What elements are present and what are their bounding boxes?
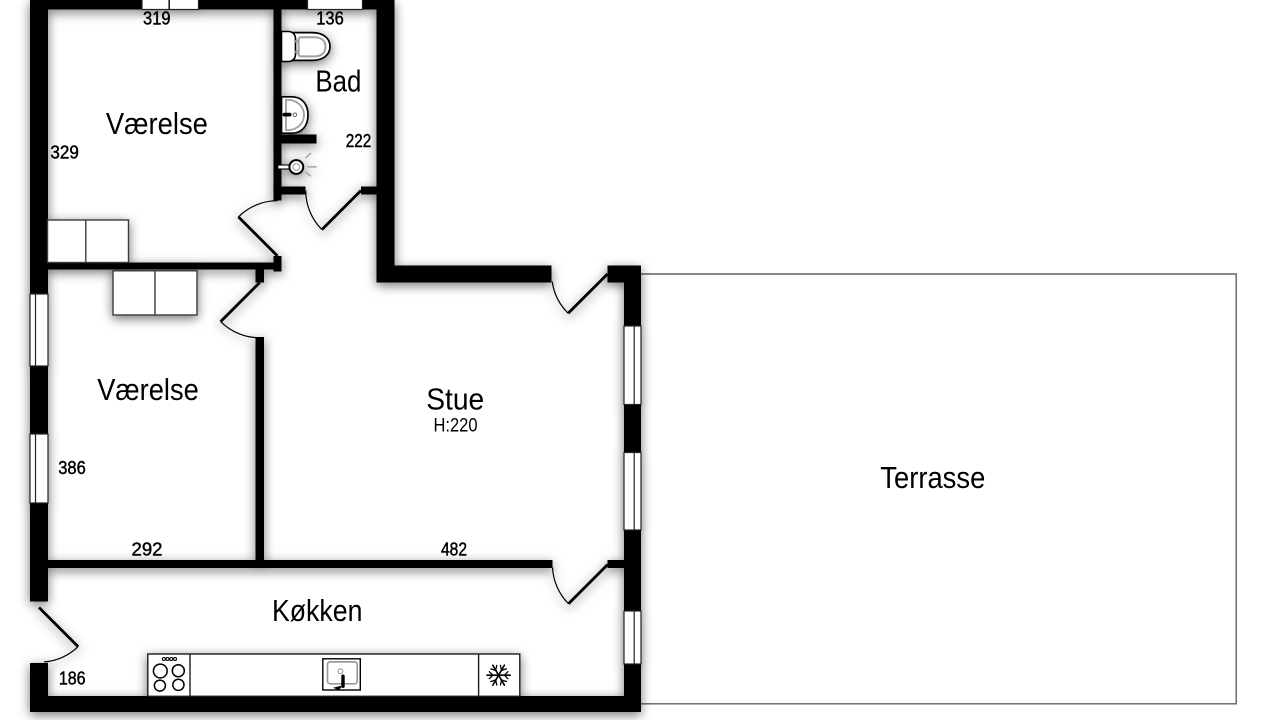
svg-text:Bad: Bad xyxy=(315,63,361,98)
svg-text:386: 386 xyxy=(58,458,86,478)
svg-text:Terrasse: Terrasse xyxy=(880,460,985,495)
svg-text:329: 329 xyxy=(50,142,79,162)
svg-text:292: 292 xyxy=(132,540,163,560)
svg-text:136: 136 xyxy=(316,9,344,29)
svg-text:482: 482 xyxy=(441,540,467,560)
svg-text:Køkken: Køkken xyxy=(272,593,363,628)
svg-text:H:220: H:220 xyxy=(434,415,478,437)
svg-text:Stue: Stue xyxy=(426,381,484,416)
svg-text:319: 319 xyxy=(143,9,171,29)
svg-text:Værelse: Værelse xyxy=(106,106,208,141)
svg-text:186: 186 xyxy=(59,669,86,689)
svg-text:Værelse: Værelse xyxy=(97,372,199,407)
svg-text:222: 222 xyxy=(346,131,372,151)
